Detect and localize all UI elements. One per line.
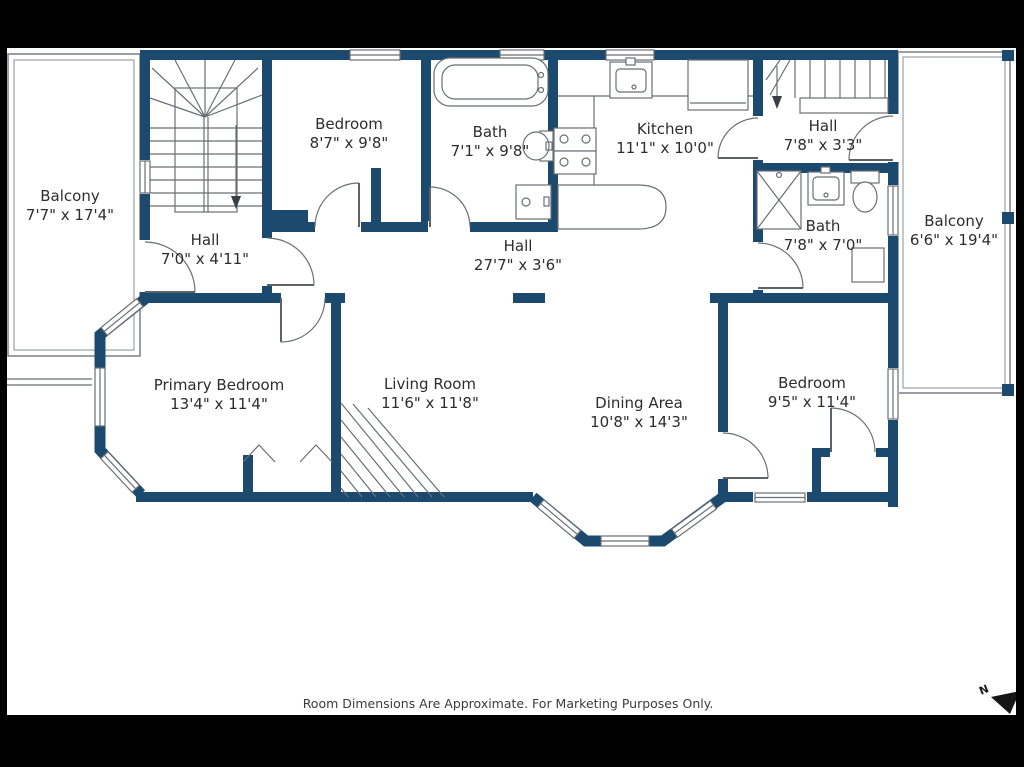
closet-wall [243,455,253,497]
door-arc-icon [723,433,768,478]
sink-icon [808,167,844,205]
balcony-post [1002,50,1014,61]
toilet-icon [851,171,879,212]
window-icon [888,369,898,419]
room-label-bedroom-top: Bedroom [315,115,383,133]
stove-icon [554,128,596,174]
room-dims-balcony-right: 6'6" x 19'4" [910,231,998,249]
window-icon [601,536,649,546]
room-label-balcony-left: Balcony [40,187,100,205]
window-icon [672,501,717,537]
room-dims-hall-stairs: 7'0" x 4'11" [161,250,249,268]
room-dims-living-room: 11'6" x 11'8" [381,394,479,412]
room-label-hall-center: Hall [504,237,533,255]
floor-plan: Balcony 7'7" x 17'4" Hall 7'0" x 4'11" B… [0,0,1024,767]
door-arc-icon [831,408,875,452]
kitchen-sink-icon [610,58,652,98]
kitchen-peninsula [558,185,666,229]
window-icon [95,368,105,426]
window-icon [101,452,140,492]
door-arc-icon [267,238,314,285]
wall-pier [268,210,308,232]
stair-down-arrow-icon [231,196,241,209]
staircase-upper-left [150,60,262,212]
room-dims-balcony-left: 7'7" x 17'4" [26,206,114,224]
north-arrow-icon [991,691,1020,714]
staircase-upper-right [766,60,888,113]
room-label-bath-right: Bath [806,217,841,235]
room-dims-bath-top: 7'1" x 9'8" [451,142,530,160]
door-arc-icon [315,183,359,227]
room-label-balcony-right: Balcony [924,212,984,230]
room-dims-dining-area: 10'8" x 14'3" [590,413,688,431]
window-icon [755,493,805,502]
room-label-living-room: Living Room [384,375,476,393]
room-dims-hall-upper-right: 7'8" x 3'3" [784,136,863,154]
room-label-hall-upper-right: Hall [809,117,838,135]
compass-north: N [977,682,1020,714]
room-label-bedroom-right: Bedroom [778,374,846,392]
room-dims-bath-right: 7'8" x 7'0" [784,236,863,254]
window-icon [140,161,150,193]
wall-openings [139,49,899,503]
closet-wall [812,448,821,496]
room-label-kitchen: Kitchen [637,120,693,138]
shower-icon [757,171,801,229]
room-dims-kitchen: 11'1" x 10'0" [616,139,714,157]
north-label: N [977,682,990,698]
fridge-icon [688,60,748,110]
floor-plan-page: Balcony 7'7" x 17'4" Hall 7'0" x 4'11" B… [0,0,1024,767]
room-label-hall-stairs: Hall [191,231,220,249]
room-dims-bedroom-right: 9'5" x 11'4" [768,393,856,411]
bifold-door-icon [300,445,332,462]
window-icon [888,186,898,235]
balcony-post [1002,212,1014,224]
window-icon [537,500,580,539]
door-arc-icon [281,298,325,342]
room-dims-primary-bedroom: 13'4" x 11'4" [170,395,268,413]
room-dims-bedroom-top: 8'7" x 9'8" [310,134,389,152]
deck-edge-line [6,379,92,385]
washer-icon [516,185,551,219]
window-icon [350,50,400,60]
closet-wall [371,168,381,230]
staircase-lower [341,403,444,497]
stair-down-arrow-icon [772,96,782,109]
room-dims-hall-center: 27'7" x 3'6" [474,256,562,274]
room-label-bath-top: Bath [473,123,508,141]
room-label-primary-bedroom: Primary Bedroom [154,376,285,394]
wall-stub [513,293,545,303]
footer-note: Room Dimensions Are Approximate. For Mar… [303,696,714,711]
room-label-dining-area: Dining Area [595,394,683,412]
bathtub-icon [434,58,548,106]
balcony-post [1002,384,1014,396]
